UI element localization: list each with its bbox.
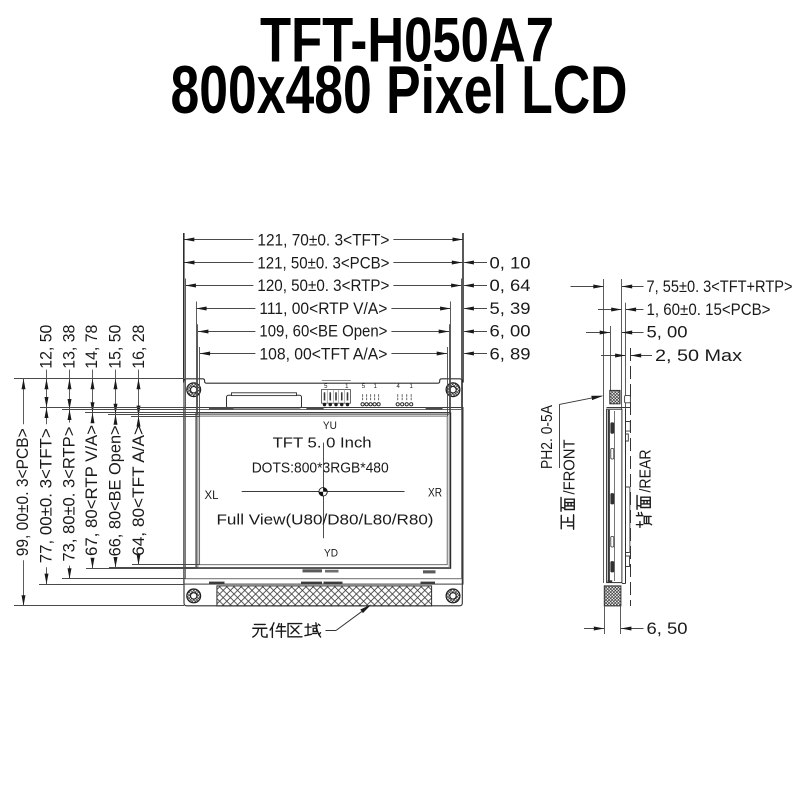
svg-text:6, 50: 6, 50 (647, 620, 688, 638)
svg-text:16, 28: 16, 28 (130, 325, 148, 369)
svg-text:800x480 Pixel LCD: 800x480 Pixel LCD (171, 52, 628, 128)
svg-text:YD: YD (324, 548, 338, 560)
svg-text:7, 55±0. 3<TFT+RTP>: 7, 55±0. 3<TFT+RTP> (647, 278, 793, 296)
svg-text:TFT 5. 0 Inch: TFT 5. 0 Inch (273, 435, 372, 451)
svg-text:0, 64: 0, 64 (490, 277, 531, 295)
svg-text:13, 38: 13, 38 (60, 325, 78, 369)
svg-text:PH2. 0-5A: PH2. 0-5A (539, 405, 556, 469)
svg-text:12, 50: 12, 50 (38, 325, 56, 369)
svg-text:5, 00: 5, 00 (647, 324, 688, 342)
svg-text:DOTS:800*3RGB*480: DOTS:800*3RGB*480 (252, 460, 389, 476)
svg-text:64, 80<TFT A/A>: 64, 80<TFT A/A> (130, 425, 148, 556)
svg-text:73, 80±0. 3<RTP>: 73, 80±0. 3<RTP> (60, 427, 78, 562)
svg-text:1, 60±0. 15<PCB>: 1, 60±0. 15<PCB> (647, 301, 771, 319)
svg-text:120, 50±0. 3<RTP>: 120, 50±0. 3<RTP> (257, 277, 389, 295)
svg-text:5, 39: 5, 39 (490, 300, 531, 318)
svg-text:XR: XR (428, 488, 442, 500)
svg-text:/FRONT: /FRONT (562, 439, 579, 494)
svg-text:77, 00±0. 3<TFT>: 77, 00±0. 3<TFT> (38, 428, 56, 563)
svg-text:15, 50: 15, 50 (107, 325, 125, 369)
svg-text:108, 00<TFT A/A>: 108, 00<TFT A/A> (259, 345, 387, 363)
svg-text:66, 80<BE Open>: 66, 80<BE Open> (107, 425, 125, 556)
svg-text:67, 80<RTP V/A>: 67, 80<RTP V/A> (83, 425, 101, 556)
svg-text:Full View(U80/D80/L80/R80): Full View(U80/D80/L80/R80) (217, 513, 434, 529)
svg-text:2, 50 Max: 2, 50 Max (655, 347, 743, 365)
svg-text:0, 10: 0, 10 (490, 255, 531, 273)
svg-text:121, 50±0. 3<PCB>: 121, 50±0. 3<PCB> (257, 255, 389, 273)
svg-text:6, 89: 6, 89 (490, 345, 531, 363)
svg-text:109, 60<BE Open>: 109, 60<BE Open> (259, 323, 387, 341)
svg-text:121, 70±0. 3<TFT>: 121, 70±0. 3<TFT> (257, 232, 389, 250)
svg-text:/REAR: /REAR (638, 450, 655, 493)
svg-text:99, 00±0. 3<PCB>: 99, 00±0. 3<PCB> (14, 428, 32, 556)
svg-text:111, 00<RTP V/A>: 111, 00<RTP V/A> (259, 300, 387, 318)
svg-text:XL: XL (205, 490, 220, 502)
svg-text:YU: YU (323, 420, 337, 432)
svg-text:6, 00: 6, 00 (490, 323, 531, 341)
svg-text:14, 78: 14, 78 (83, 325, 101, 369)
